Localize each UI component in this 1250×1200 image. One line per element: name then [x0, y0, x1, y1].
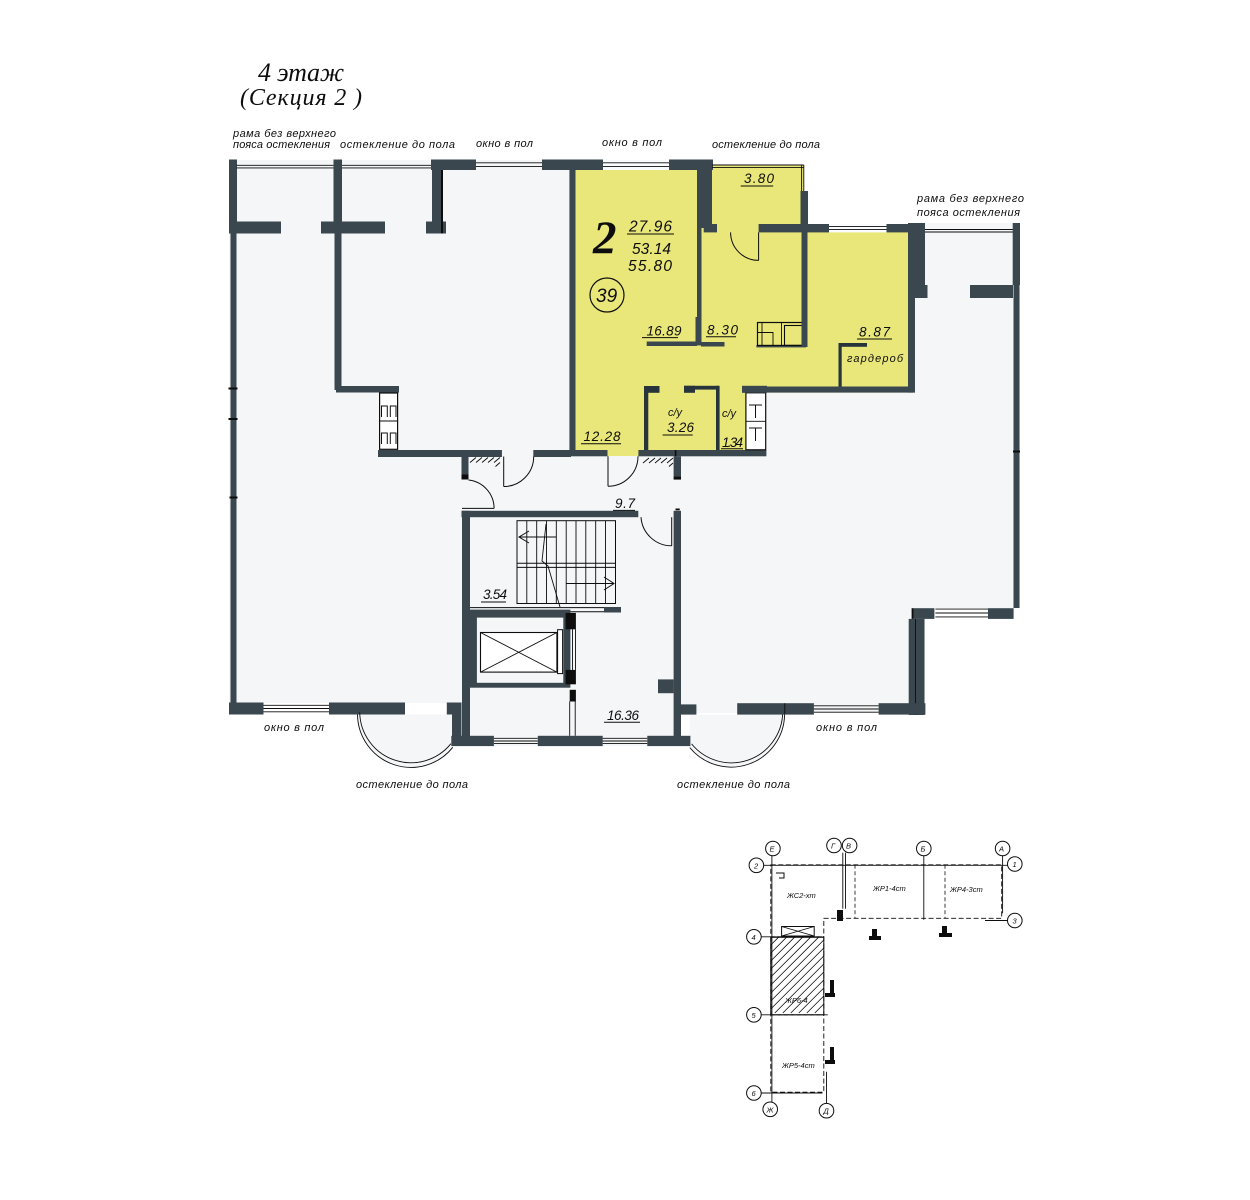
svg-text:Д: Д [823, 1107, 830, 1116]
svg-text:39: 39 [596, 286, 618, 307]
svg-text:с/у: с/у [668, 407, 684, 419]
svg-text:В: В [846, 842, 851, 851]
svg-text:А: А [998, 845, 1004, 854]
svg-text:55.80: 55.80 [628, 258, 672, 275]
svg-text:ЖР4-3ст: ЖР4-3ст [949, 885, 983, 894]
svg-text:пояса остекления: пояса остекления [233, 139, 330, 151]
svg-text:остекление до пола: остекление до пола [677, 779, 790, 791]
svg-text:27.96: 27.96 [628, 219, 672, 236]
svg-text:остекление до пола: остекление до пола [356, 779, 468, 791]
svg-text:8.87: 8.87 [859, 325, 890, 340]
svg-text:3.54: 3.54 [483, 587, 507, 602]
svg-text:3.26: 3.26 [667, 420, 694, 435]
svg-text:гардероб: гардероб [847, 353, 904, 365]
svg-text:остекление до пола: остекление до пола [712, 139, 820, 151]
svg-text:Б: Б [921, 845, 926, 854]
svg-text:окно в пол: окно в пол [602, 137, 662, 149]
svg-text:8.30: 8.30 [707, 323, 738, 338]
svg-text:ЖР5-4ст: ЖР5-4ст [781, 1061, 815, 1070]
svg-text:9.7: 9.7 [615, 496, 635, 511]
svg-text:3.80: 3.80 [744, 171, 774, 186]
svg-text:2: 2 [753, 861, 759, 870]
svg-text:окно в пол: окно в пол [476, 138, 533, 150]
svg-text:ЖР6-4: ЖР6-4 [784, 996, 808, 1005]
svg-text:остекление до пола: остекление до пола [340, 139, 455, 151]
svg-text:ЖС2-хт: ЖС2-хт [786, 891, 816, 900]
svg-text:ЖР1-4ст: ЖР1-4ст [872, 884, 906, 893]
svg-text:(Секция 2 ): (Секция 2 ) [240, 85, 362, 111]
svg-text:2: 2 [592, 212, 617, 264]
svg-text:окно в пол: окно в пол [264, 722, 324, 734]
svg-text:рама без верхнего: рама без верхнего [916, 193, 1024, 205]
svg-text:Ж: Ж [766, 1105, 775, 1114]
svg-text:4 этаж: 4 этаж [258, 58, 344, 87]
svg-text:с/у: с/у [722, 408, 738, 420]
svg-text:53.14: 53.14 [632, 241, 671, 258]
svg-text:16.36: 16.36 [607, 708, 639, 723]
svg-text:пояса остекления: пояса остекления [917, 207, 1020, 219]
svg-text:1.34: 1.34 [722, 435, 743, 450]
svg-text:окно в пол: окно в пол [816, 722, 877, 734]
svg-text:4: 4 [752, 933, 756, 942]
svg-text:1: 1 [1013, 860, 1017, 869]
svg-text:16.89: 16.89 [647, 324, 682, 339]
svg-text:12.28: 12.28 [584, 429, 621, 444]
